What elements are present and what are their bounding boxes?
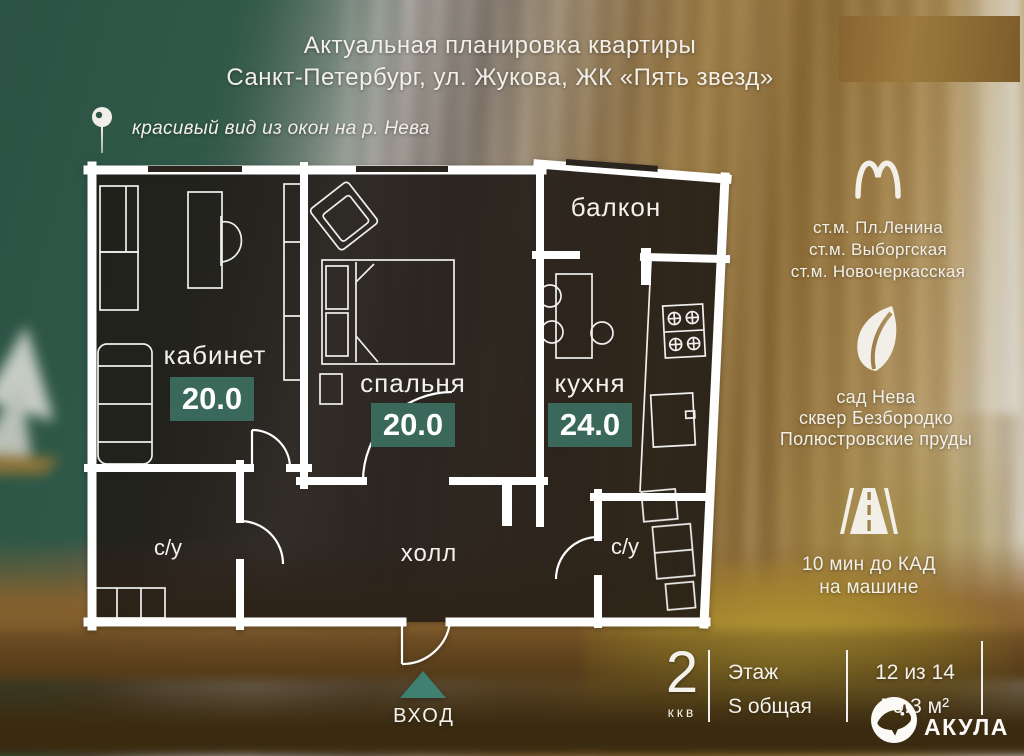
- badge-bedroom-value: 20.0: [383, 407, 443, 442]
- room-label-bath-left: с/у: [154, 535, 182, 560]
- info-metro: ст.м. Пл.Ленина ст.м. Выборгская ст.м. Н…: [756, 148, 1000, 283]
- info-drive: 10 мин до КАД на машине: [744, 484, 994, 599]
- metro-station: ст.м. Пл.Ленина: [756, 217, 1000, 239]
- area-label: S общая: [728, 690, 838, 724]
- metro-station: ст.м. Выборгская: [756, 239, 1000, 261]
- park-item: Полюстровские пруды: [748, 429, 1004, 450]
- entrance-label: ВХОД: [393, 705, 455, 727]
- room-label-hall: холл: [401, 540, 458, 567]
- metro-station: ст.м. Новочеркасская: [756, 261, 1000, 283]
- room-label-balcony: балкон: [571, 192, 661, 222]
- summary-labels: Этаж S общая: [728, 656, 838, 724]
- floor-label: Этаж: [728, 656, 838, 690]
- rooms-count: 2: [660, 644, 704, 702]
- room-label-bath-right: с/у: [611, 534, 639, 559]
- brand-logo: АКУЛА: [870, 696, 1009, 744]
- metro-icon: [850, 148, 906, 202]
- room-label-office: кабинет: [164, 340, 267, 370]
- divider: [846, 650, 848, 722]
- room-label-kitchen: кухня: [554, 368, 625, 398]
- park-item: сад Нева: [748, 387, 1004, 408]
- rooms-caption: ккв: [660, 704, 704, 720]
- info-parks: сад Нева сквер Безбородко Полюстровские …: [748, 304, 1004, 450]
- leaf-icon: [852, 304, 900, 372]
- shark-icon: [870, 696, 918, 744]
- park-item: сквер Безбородко: [748, 408, 1004, 429]
- poster: Актуальная планировка квартиры Санкт-Пет…: [0, 0, 1024, 756]
- badge-office-value: 20.0: [182, 381, 242, 416]
- drive-line: 10 мин до КАД: [744, 553, 994, 576]
- entrance-arrow-icon: [400, 671, 446, 698]
- road-icon: [840, 484, 898, 538]
- brand-name: АКУЛА: [924, 714, 1009, 741]
- room-label-bedroom: спальня: [360, 368, 466, 398]
- floor-value: 12 из 14: [856, 656, 974, 690]
- drive-line: на машине: [744, 576, 994, 599]
- badge-kitchen-value: 24.0: [560, 407, 620, 442]
- divider: [708, 650, 710, 722]
- entrance: ВХОД: [393, 671, 455, 727]
